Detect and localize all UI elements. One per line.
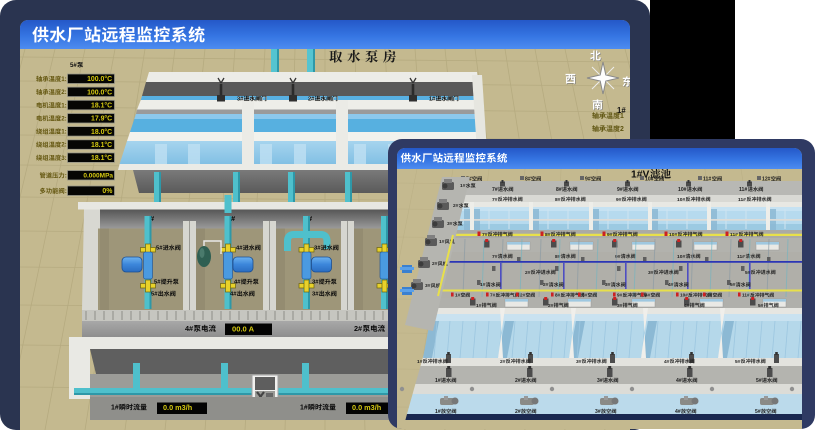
svg-text:4#: 4# bbox=[664, 359, 670, 365]
svg-text:2#: 2# bbox=[515, 378, 521, 384]
svg-text:11#: 11# bbox=[738, 197, 746, 203]
svg-text:0%: 0% bbox=[102, 188, 112, 195]
svg-text:10#: 10# bbox=[677, 254, 685, 260]
svg-text:8#: 8# bbox=[545, 232, 551, 238]
svg-text:0.0 m3/h: 0.0 m3/h bbox=[163, 403, 192, 412]
svg-text:7#: 7# bbox=[492, 187, 498, 193]
svg-text:3#: 3# bbox=[312, 280, 319, 286]
svg-text:1:: 1: bbox=[61, 102, 67, 109]
svg-text:0.000MPa: 0.000MPa bbox=[83, 173, 113, 180]
svg-text:5#: 5# bbox=[154, 280, 161, 286]
svg-text:3#: 3# bbox=[617, 303, 623, 309]
svg-text:1#: 1# bbox=[300, 404, 308, 411]
svg-text:11#: 11# bbox=[730, 232, 738, 238]
svg-text:8#: 8# bbox=[556, 187, 562, 193]
svg-text:3#: 3# bbox=[425, 283, 431, 289]
svg-text:3#: 3# bbox=[312, 292, 319, 298]
svg-text:2#: 2# bbox=[453, 203, 459, 209]
svg-text:10#: 10# bbox=[678, 187, 687, 193]
svg-text:5#: 5# bbox=[756, 378, 762, 384]
svg-text:2#: 2# bbox=[525, 270, 531, 276]
svg-text:2:: 2: bbox=[61, 142, 67, 149]
svg-text:3#: 3# bbox=[576, 359, 582, 365]
svg-text:1#: 1# bbox=[455, 293, 461, 298]
svg-text:11#: 11# bbox=[742, 293, 750, 298]
svg-text:4#: 4# bbox=[668, 282, 674, 288]
svg-text:3#: 3# bbox=[648, 270, 654, 276]
svg-text:1: 1 bbox=[620, 113, 624, 120]
svg-text:7#: 7# bbox=[482, 232, 488, 238]
svg-text:5#: 5# bbox=[758, 303, 764, 309]
svg-text:3#: 3# bbox=[582, 293, 588, 298]
svg-text:18.1°C: 18.1°C bbox=[91, 102, 112, 110]
svg-text::: : bbox=[65, 173, 67, 180]
svg-text:7#: 7# bbox=[492, 197, 498, 203]
svg-text:10#: 10# bbox=[669, 232, 677, 238]
svg-text:1#: 1# bbox=[429, 96, 436, 102]
svg-text:00.0 A: 00.0 A bbox=[232, 324, 255, 333]
svg-text:1#: 1# bbox=[111, 404, 119, 411]
svg-text:5#: 5# bbox=[745, 270, 751, 276]
svg-text:9#: 9# bbox=[617, 187, 623, 193]
svg-text:5#: 5# bbox=[70, 62, 77, 69]
svg-text:5#: 5# bbox=[730, 282, 736, 288]
svg-text:1#: 1# bbox=[476, 303, 482, 309]
svg-text:2:: 2: bbox=[61, 115, 67, 122]
svg-text:2#: 2# bbox=[543, 282, 549, 288]
svg-text:1#: 1# bbox=[435, 378, 441, 384]
svg-text:7#: 7# bbox=[490, 293, 496, 298]
svg-text:4#: 4# bbox=[236, 246, 243, 252]
svg-text:5#: 5# bbox=[151, 292, 158, 298]
svg-text:1:: 1: bbox=[61, 76, 67, 83]
svg-text:7#: 7# bbox=[492, 254, 498, 260]
svg-text:9#: 9# bbox=[607, 232, 613, 238]
svg-text:3#: 3# bbox=[605, 282, 611, 288]
svg-text:1#: 1# bbox=[480, 282, 486, 288]
svg-text:5#: 5# bbox=[707, 293, 713, 298]
svg-text:0.0 m3/h: 0.0 m3/h bbox=[352, 403, 381, 412]
svg-text:4#: 4# bbox=[645, 293, 651, 298]
svg-text:8#: 8# bbox=[555, 197, 561, 203]
svg-text:2#: 2# bbox=[548, 303, 554, 309]
svg-text::: : bbox=[65, 188, 67, 195]
svg-text:10#: 10# bbox=[680, 293, 688, 298]
svg-text:1#: 1# bbox=[460, 183, 466, 189]
svg-text:2#: 2# bbox=[500, 359, 506, 365]
svg-text:18.1°C: 18.1°C bbox=[91, 154, 112, 162]
svg-text:3#: 3# bbox=[237, 96, 244, 102]
svg-text:11#: 11# bbox=[737, 254, 745, 260]
svg-text:2:: 2: bbox=[61, 89, 67, 96]
svg-text:10#: 10# bbox=[677, 197, 685, 203]
svg-text:4#: 4# bbox=[185, 324, 193, 333]
svg-text:2#: 2# bbox=[308, 96, 315, 102]
svg-text:2#: 2# bbox=[354, 324, 362, 333]
svg-text:1#: 1# bbox=[417, 359, 423, 365]
svg-text:100.0°C: 100.0°C bbox=[87, 88, 112, 96]
svg-text:3#: 3# bbox=[597, 378, 603, 384]
svg-text:3#: 3# bbox=[447, 221, 453, 227]
svg-text:8#: 8# bbox=[555, 293, 561, 298]
svg-text:9#: 9# bbox=[617, 293, 623, 298]
svg-text:11#: 11# bbox=[739, 187, 747, 193]
svg-text:100.0°C: 100.0°C bbox=[87, 75, 112, 83]
svg-text:1:: 1: bbox=[61, 129, 67, 136]
svg-text:5#: 5# bbox=[156, 246, 163, 252]
svg-text:4#: 4# bbox=[234, 280, 241, 286]
svg-text:4#: 4# bbox=[684, 303, 690, 309]
svg-text:9#: 9# bbox=[616, 197, 622, 203]
svg-text:5#: 5# bbox=[735, 359, 741, 365]
svg-text:3:: 3: bbox=[61, 155, 67, 162]
svg-text:2#: 2# bbox=[432, 261, 438, 267]
svg-text:17.9°C: 17.9°C bbox=[91, 115, 112, 123]
svg-text:1#: 1# bbox=[439, 239, 445, 245]
svg-text:4#: 4# bbox=[230, 292, 237, 298]
svg-text:18.1°C: 18.1°C bbox=[91, 141, 112, 149]
svg-text:4#: 4# bbox=[676, 378, 682, 384]
svg-text:3#: 3# bbox=[314, 246, 321, 252]
svg-text:2#: 2# bbox=[520, 293, 526, 298]
svg-text:18.0°C: 18.0°C bbox=[91, 128, 112, 136]
svg-text:2: 2 bbox=[620, 126, 624, 133]
